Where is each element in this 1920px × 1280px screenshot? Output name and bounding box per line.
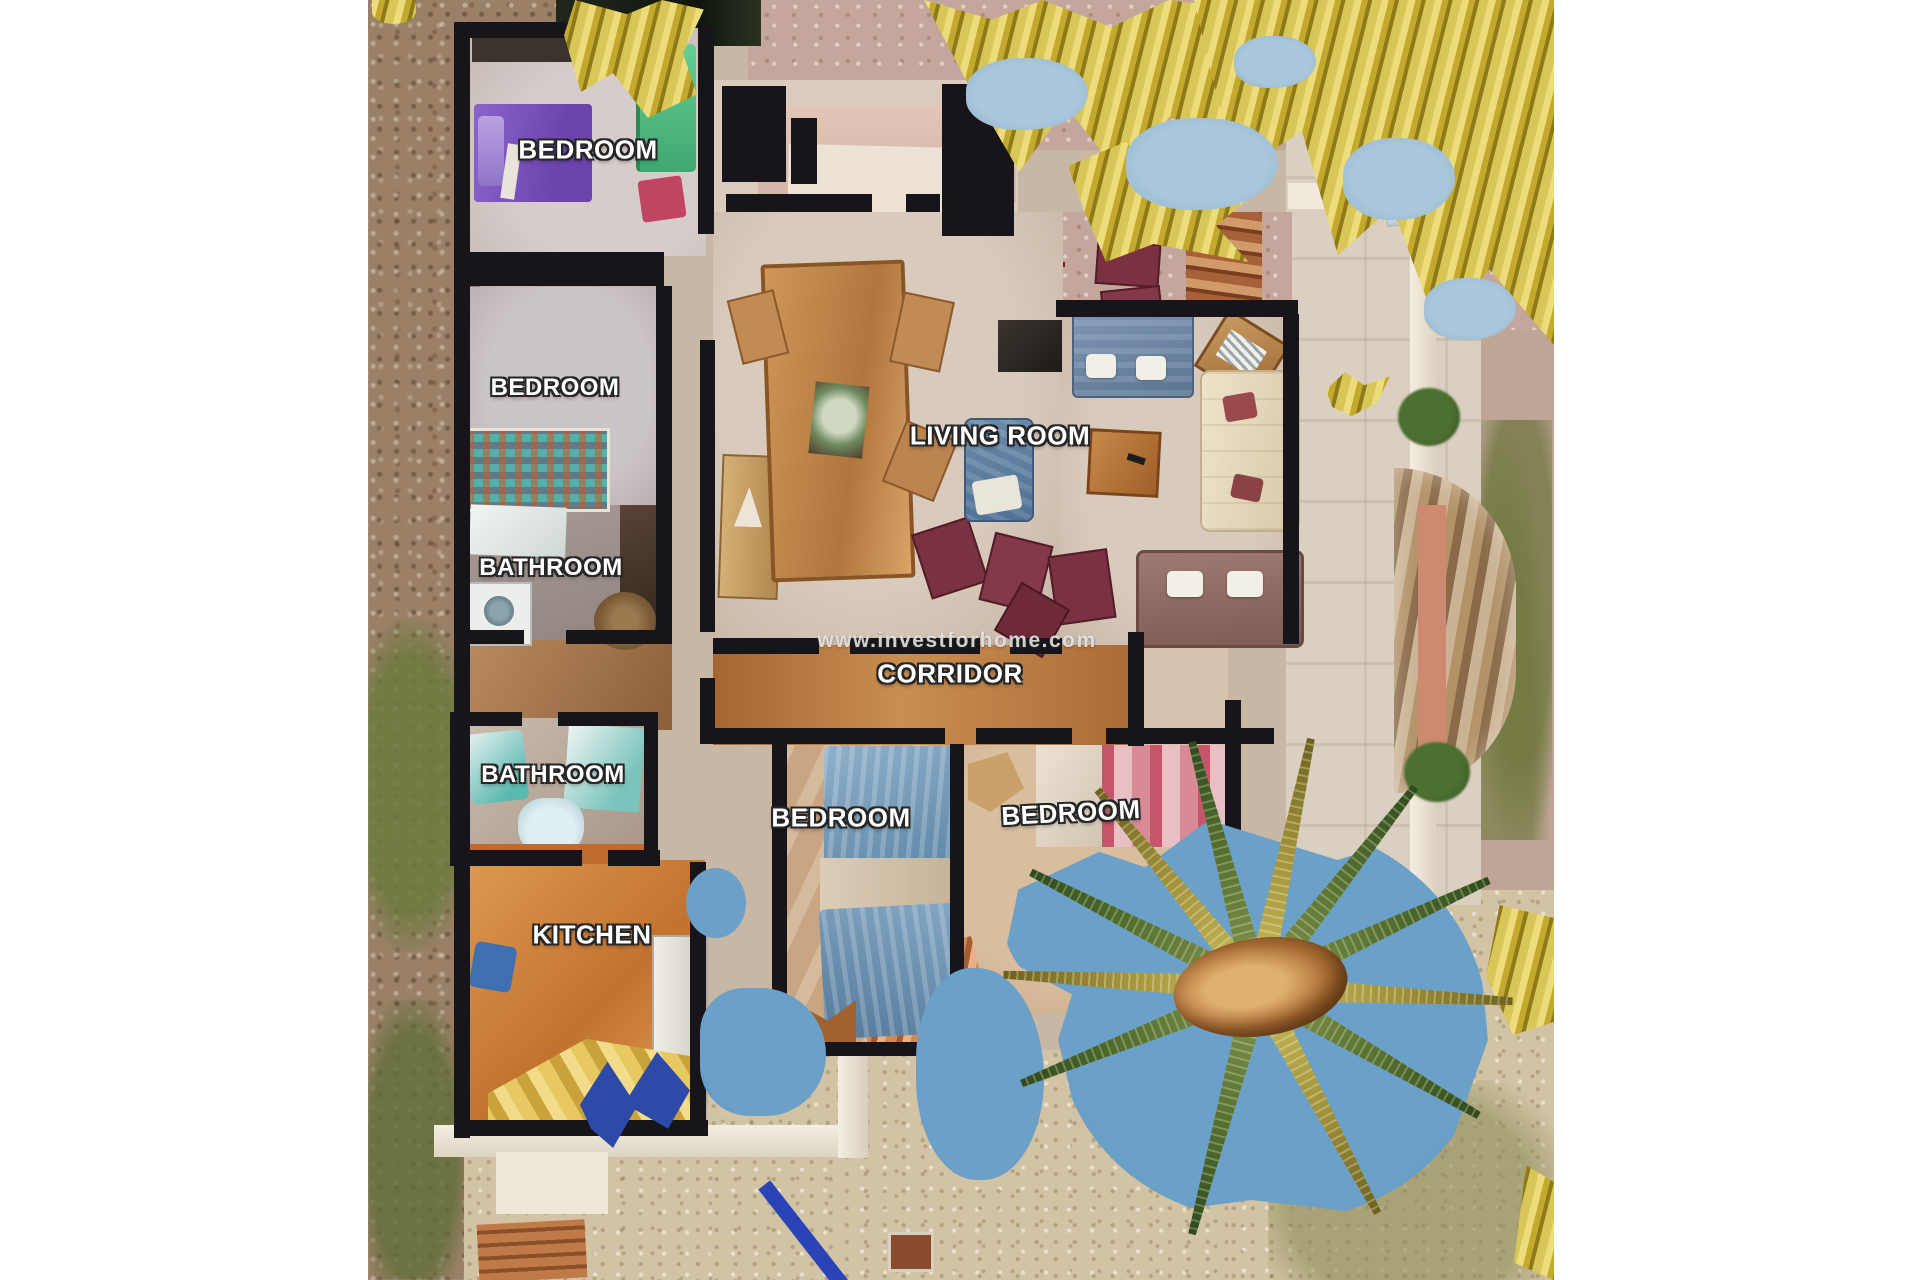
bed-purple-pillow [478,116,504,186]
wall-bathroom1-bottom-a [462,630,524,644]
bed-plaid-bedroom-2 [464,428,610,512]
sky-patch-2 [1126,118,1278,210]
page: BEDROOM BEDROOM BATHROOM BATHROOM KITCHE… [0,0,1920,1280]
room-label-corridor: CORRIDOR [877,659,1023,690]
table-centerpiece [808,381,869,458]
wall-inner-west-upper [700,340,715,632]
wall-corridor-top-a [713,638,819,654]
wall-bathroom1-bottom-b [566,630,672,644]
wall-living-east [1283,314,1299,644]
wall-corridor-bottom-b [976,728,1072,744]
coffee-table-remote [1127,453,1146,465]
room-label-living-room: LIVING ROOM [910,421,1090,452]
coffee-table [1086,428,1161,498]
sofa-cream-red-cushion [1222,391,1258,422]
room-label-bedroom-1: BEDROOM [518,135,657,166]
wall-corridor-east [1128,632,1144,746]
wall-entry-living-a [726,194,872,212]
floorplan-photo: BEDROOM BEDROOM BATHROOM BATHROOM KITCHE… [368,0,1554,1280]
chair-red-bedroom-1 [637,175,686,223]
bathroom1-counter [469,504,567,557]
sofa-cream-red-cushion-2 [1230,473,1264,503]
patio-white-block [496,1152,608,1214]
wall-bed1-bed2-divider [462,252,664,286]
palm-tree [1008,820,1554,1280]
washer-drum [484,596,514,626]
kitchen-blue-pot [468,941,517,994]
room-label-bedroom-2: BEDROOM [491,374,620,402]
room-label-bedroom-3: BEDROOM [771,803,910,834]
bush-1 [1398,388,1460,446]
sky-blob-kitchen-edge [686,868,746,938]
gold-tuft-corner [372,0,416,24]
entry-doorway-black-3 [791,118,817,184]
sofa-blue [1072,310,1194,398]
wall-bathroom2-top-b [558,712,658,726]
wall-bedroom2-right [656,286,672,644]
wall-left-outer [454,26,470,1138]
wall-bathroom2-kitchen-a [450,850,582,866]
wall-bedroom1-right [698,28,714,234]
wall-entry-living-b [906,194,940,212]
room-label-bathroom-1: BATHROOM [479,554,623,582]
wall-corridor-bottom-a [713,728,945,744]
room-label-bathroom-2: BATHROOM [481,761,625,789]
watermark: www.investforhome.com [817,629,1096,653]
dining-table [760,260,915,583]
wall-bathroom2-left [450,712,464,864]
wall-bathroom2-kitchen-b [608,850,660,866]
porch-salmon-strip [1418,505,1446,760]
tv-cabinet [998,320,1062,372]
entry-doorway-black-1 [722,86,786,182]
sofa-brown [1136,550,1304,648]
room-label-kitchen: KITCHEN [532,920,651,951]
wall-bathroom2-right [644,712,658,864]
armchair-cloth [971,474,1022,515]
paver-square [888,1232,934,1272]
sideboard-lamp [734,486,763,527]
wall-nook-north [1056,300,1298,317]
tile-stack-bottom-left [477,1219,588,1280]
sky-blob-patio-2 [700,988,826,1116]
